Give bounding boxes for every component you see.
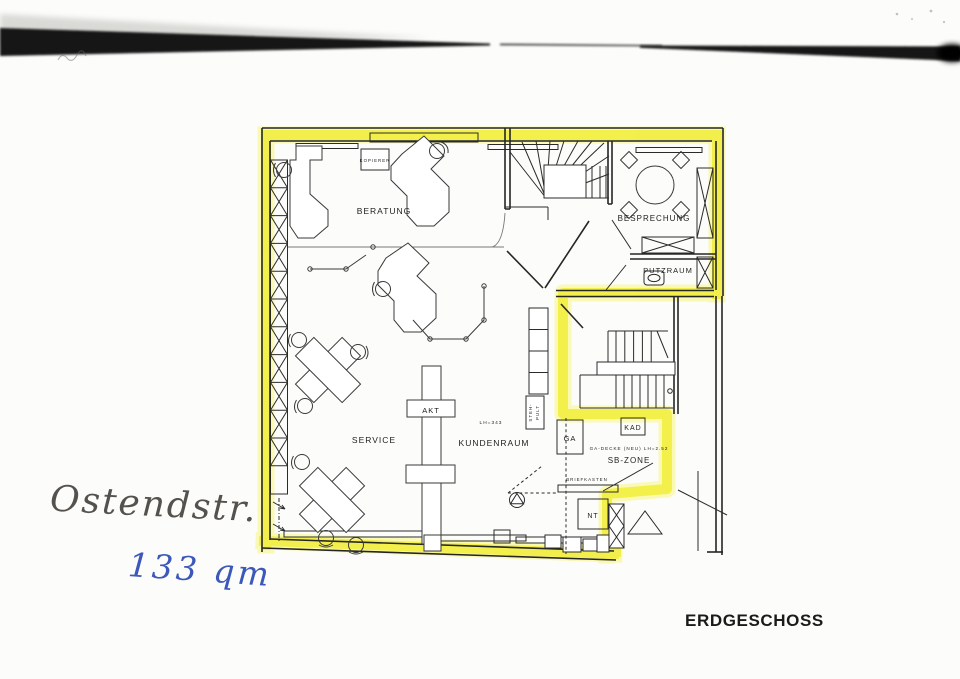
room-kundenraum: AKT STEH- PULT LH=343 KUNDENRAUM	[406, 308, 548, 551]
label-kad: KAD	[624, 425, 641, 432]
akt-counter	[406, 366, 455, 551]
scan-artifact	[0, 0, 960, 95]
label-stehpult-1: STEH-	[528, 403, 533, 421]
floor-plan: BESPRECHUNG PUTZRAUM KOPIERER	[240, 108, 740, 568]
label-kundenraum: KUNDENRAUM	[459, 438, 530, 448]
label-sb-zone: SB-ZONE	[608, 456, 651, 465]
label-akt: AKT	[422, 406, 440, 415]
scanned-floor-plan-page: BESPRECHUNG PUTZRAUM KOPIERER	[0, 0, 960, 679]
cabinet-x-bottom	[642, 237, 694, 253]
floor-title: ERDGESCHOSS	[685, 611, 824, 631]
label-stehpult-2: PULT	[535, 405, 540, 420]
column-symbol	[510, 493, 525, 508]
label-nt: NT	[587, 513, 598, 520]
staircase-right	[580, 296, 678, 414]
label-service: SERVICE	[352, 435, 396, 445]
room-service: SERVICE	[289, 333, 397, 555]
label-ga-decke: GA-DECKE (NEU) LH=2.52	[590, 446, 669, 451]
entrance-triangle	[628, 511, 662, 534]
x-hatch-block	[609, 504, 624, 548]
label-besprechung: BESPRECHUNG	[618, 214, 691, 223]
sb-zone: GA KAD GA-DECKE (NEU) LH=2.52 SB-ZONE BR…	[508, 418, 727, 554]
room-beratung: KOPIERER BERATUNG	[274, 136, 505, 341]
room-putzraum: PUTZRAUM	[556, 257, 714, 297]
label-beratung: BERATUNG	[357, 206, 412, 216]
desk-group-2	[299, 467, 364, 532]
exterior-diagonal	[678, 490, 727, 515]
desk-group-1	[295, 337, 360, 402]
label-kopierer: KOPIERER	[360, 158, 391, 163]
label-briefkasten: BRIEFKASTEN	[566, 477, 608, 482]
room-besprechung: BESPRECHUNG	[618, 152, 716, 259]
meeting-chairs	[621, 152, 690, 219]
handwritten-street: Ostendstr.	[49, 479, 259, 531]
shelf-column	[529, 308, 548, 394]
label-lh: LH=343	[480, 420, 503, 426]
meeting-table	[636, 166, 674, 204]
label-putzraum: PUTZRAUM	[643, 266, 693, 275]
